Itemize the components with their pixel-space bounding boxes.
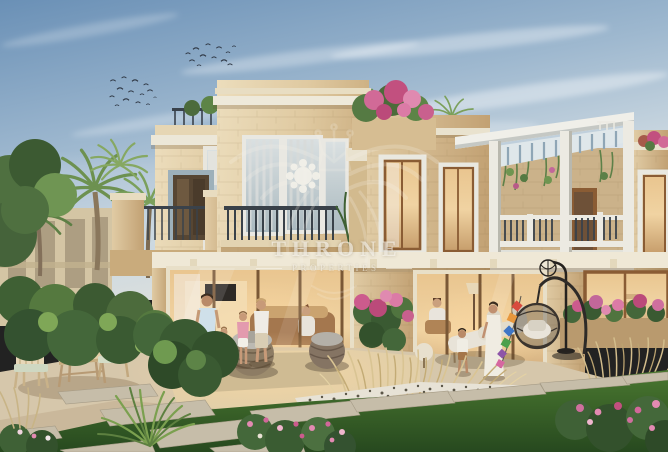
rattan-pouf-2 bbox=[305, 332, 349, 372]
villa-scene bbox=[0, 0, 668, 452]
right-window-2 bbox=[441, 165, 476, 254]
right-window-1 bbox=[381, 157, 424, 252]
villa-photo: THRONE PROPERTIES bbox=[0, 0, 668, 452]
entablature bbox=[152, 252, 668, 268]
upper-window-3 bbox=[324, 140, 347, 232]
far-right-window bbox=[640, 172, 668, 256]
center-cornice bbox=[213, 96, 373, 105]
